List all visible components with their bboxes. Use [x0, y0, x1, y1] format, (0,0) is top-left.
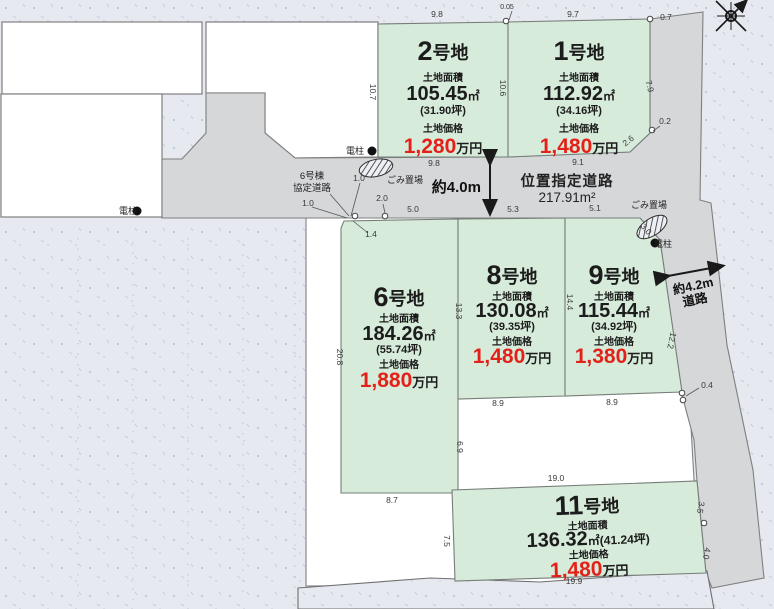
dim-g190: 19.0	[548, 473, 565, 483]
dim-m144: 14.4	[565, 294, 575, 311]
svg-text:(55.74坪): (55.74坪)	[376, 343, 422, 356]
dim-road-91: 9.1	[572, 157, 584, 167]
dim-k10a: 1.0	[353, 173, 365, 183]
dim-k10b: 1.0	[302, 198, 314, 208]
dim-right-02: 0.2	[659, 116, 671, 126]
svg-text:(39.35坪): (39.35坪)	[489, 320, 535, 333]
dim-k51: 5.1	[589, 203, 601, 213]
agreement-road-label-line1: 6号棟	[300, 170, 325, 182]
dim-r35: 3.5	[695, 501, 707, 515]
dim-g87: 8.7	[386, 495, 398, 505]
garbage-label-left: ごみ置場	[387, 174, 423, 185]
svg-text:(34.92坪): (34.92坪)	[591, 320, 637, 333]
dim-mid-106: 10.6	[498, 80, 508, 97]
plot-2-price-label: 土地価格	[423, 122, 464, 135]
dim-r40: 4.0	[701, 547, 713, 561]
dim-k20: 2.0	[376, 193, 388, 203]
dim-k53: 5.3	[507, 204, 519, 214]
dim-top-98: 9.8	[431, 9, 443, 19]
plot-1-number: 1	[553, 36, 568, 66]
plot-map-canvas: 位置指定道路 217.91m² 約4.0m 約4.2m 道路 6号棟 協定道路 …	[0, 0, 774, 609]
road-width-label: 約4.0m	[432, 178, 481, 196]
plot-2-number-suffix: 号地	[433, 42, 469, 63]
designated-road-label: 位置指定道路	[521, 172, 614, 190]
land-plot-map: 位置指定道路 217.91m² 約4.0m 約4.2m 道路 6号棟 協定道路 …	[0, 0, 774, 609]
dim-left-107: 10.7	[368, 84, 378, 101]
plot-6-region	[341, 219, 458, 493]
garbage-label-right: ごみ置場	[631, 199, 667, 210]
dim-g75: 7.5	[442, 535, 452, 547]
dim-l208: 20.8	[335, 349, 345, 366]
plot-8-number: 8	[486, 260, 501, 290]
neighbor-building-b	[1, 94, 162, 217]
dim-g89b: 8.9	[606, 397, 618, 407]
plot-9-number: 9	[588, 260, 603, 290]
plot-11-number: 11	[554, 490, 584, 521]
dim-road-98: 9.8	[428, 158, 440, 168]
plot-6-number: 6	[373, 282, 388, 312]
dim-g89a: 8.9	[492, 398, 504, 408]
dim-k14: 1.4	[365, 229, 377, 239]
dim-top-97: 9.7	[567, 9, 579, 19]
dim-k50: 5.0	[407, 204, 419, 214]
svg-text:(34.16坪): (34.16坪)	[556, 104, 602, 117]
pole-label-right: 電柱	[654, 238, 672, 249]
neighbor-building-a	[2, 22, 202, 94]
pole-label-left: 電柱	[119, 205, 137, 216]
svg-text:土地価格: 土地価格	[559, 122, 600, 135]
plot-2-number: 2	[417, 36, 432, 66]
dim-r04: 0.4	[701, 380, 713, 390]
agreement-road-label-line2: 協定道路	[293, 182, 332, 194]
compass-north-icon	[716, 1, 746, 31]
dim-g69: 6.9	[455, 441, 465, 453]
pole-label-top: 電柱	[346, 145, 364, 156]
utility-pole-icon-top	[368, 147, 377, 156]
dim-top-005: 0.05	[500, 4, 514, 11]
designated-road-area: 217.91m²	[538, 190, 596, 205]
dim-m133: 13.3	[454, 303, 464, 320]
plot-2-tsubo: (31.90坪)	[420, 104, 466, 117]
dim-top-07: 0.7	[660, 12, 672, 22]
